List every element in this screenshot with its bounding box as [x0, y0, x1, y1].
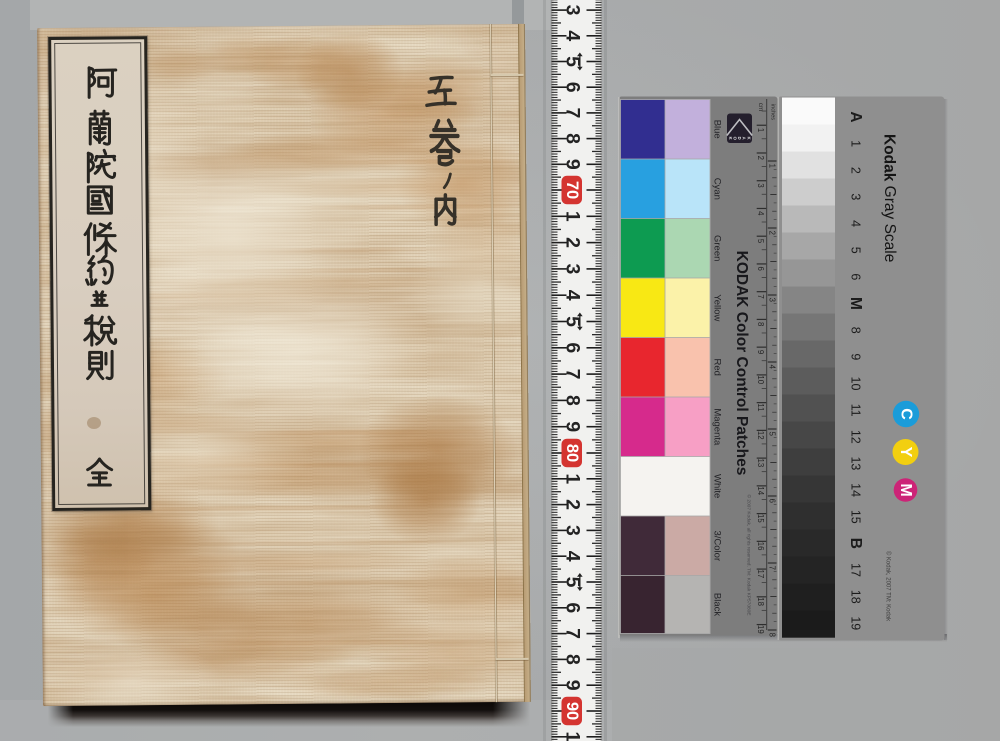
svg-text:8: 8: [561, 133, 583, 144]
svg-text:Yellow: Yellow: [712, 294, 723, 321]
svg-text:© 2007 Kodak, all rights reser: © 2007 Kodak, all rights reserved. TM: K…: [746, 494, 753, 615]
svg-text:14: 14: [849, 483, 863, 497]
svg-text:4: 4: [561, 30, 583, 41]
svg-text:13: 13: [849, 456, 863, 470]
svg-text:9: 9: [561, 159, 583, 170]
svg-text:inches: inches: [770, 104, 776, 120]
svg-text:13: 13: [756, 459, 765, 468]
svg-text:A: A: [847, 111, 864, 122]
svg-text:3: 3: [849, 193, 863, 200]
svg-text:70: 70: [563, 181, 581, 199]
svg-text:K: K: [746, 137, 751, 140]
svg-text:KODAK Color Control Patches: KODAK Color Control Patches: [733, 251, 750, 476]
svg-text:3: 3: [561, 5, 583, 16]
svg-text:8: 8: [561, 395, 583, 406]
svg-text:1: 1: [561, 473, 583, 484]
svg-text:8: 8: [561, 654, 583, 665]
svg-text:White: White: [712, 474, 723, 498]
svg-text:12: 12: [849, 430, 863, 444]
svg-text:16: 16: [756, 542, 765, 551]
svg-text:cm: cm: [757, 103, 764, 111]
svg-text:4: 4: [561, 290, 583, 301]
svg-text:14: 14: [756, 486, 765, 495]
svg-text:2: 2: [561, 499, 583, 510]
svg-text:5: 5: [849, 247, 863, 254]
svg-text:2: 2: [561, 237, 583, 248]
svg-text:9: 9: [561, 680, 583, 691]
svg-text:17: 17: [756, 570, 765, 579]
svg-text:15: 15: [756, 514, 765, 523]
svg-text:7: 7: [561, 107, 583, 118]
svg-text:18: 18: [849, 590, 863, 604]
svg-text:4: 4: [561, 551, 583, 562]
svg-text:6: 6: [756, 267, 765, 271]
svg-text:7: 7: [561, 369, 583, 380]
svg-text:Kodak Gray Scale: Kodak Gray Scale: [881, 134, 898, 262]
svg-text:11: 11: [756, 403, 765, 411]
svg-text:4: 4: [756, 211, 765, 216]
svg-text:M: M: [897, 483, 914, 496]
svg-text:18: 18: [756, 597, 765, 606]
svg-text:17: 17: [849, 563, 863, 577]
svg-text:7: 7: [767, 566, 776, 570]
svg-text:15: 15: [849, 510, 863, 524]
svg-text:7: 7: [756, 294, 765, 298]
svg-text:9: 9: [756, 350, 765, 354]
svg-text:7: 7: [561, 628, 583, 639]
svg-text:3: 3: [767, 298, 776, 302]
svg-text:1: 1: [561, 731, 583, 741]
svg-text:6: 6: [561, 82, 583, 93]
svg-text:M: M: [847, 297, 864, 310]
svg-text:10: 10: [756, 375, 765, 384]
svg-text:6: 6: [849, 273, 863, 280]
svg-text:6: 6: [561, 602, 583, 613]
svg-text:6: 6: [767, 499, 776, 503]
svg-text:6: 6: [561, 342, 583, 353]
svg-text:Blue: Blue: [712, 120, 723, 139]
svg-text:3: 3: [756, 183, 765, 187]
svg-text:1: 1: [767, 164, 776, 168]
svg-text:Red: Red: [712, 358, 723, 375]
svg-text:8: 8: [767, 633, 776, 637]
svg-text:12: 12: [756, 431, 765, 440]
svg-text:3: 3: [561, 263, 583, 274]
svg-text:Black: Black: [712, 593, 723, 616]
svg-text:4: 4: [849, 220, 863, 227]
svg-text:8: 8: [849, 327, 863, 334]
svg-text:Magenta: Magenta: [712, 408, 723, 446]
svg-text:Green: Green: [712, 235, 723, 261]
svg-text:4: 4: [767, 365, 776, 370]
svg-text:80: 80: [563, 444, 581, 462]
svg-text:9: 9: [849, 353, 863, 360]
svg-text:K: K: [728, 137, 733, 140]
svg-text:2: 2: [849, 167, 863, 174]
svg-text:1: 1: [849, 140, 863, 147]
svg-text:10: 10: [849, 377, 863, 391]
svg-text:3/Color: 3/Color: [712, 530, 723, 561]
svg-text:19: 19: [849, 616, 863, 630]
svg-text:D: D: [737, 137, 742, 140]
svg-text:© Kodak, 2007 TM: Kodak: © Kodak, 2007 TM: Kodak: [885, 551, 892, 622]
svg-text:19: 19: [756, 625, 765, 634]
svg-text:A: A: [742, 137, 747, 140]
svg-text:Cyan: Cyan: [712, 178, 723, 200]
svg-text:3: 3: [561, 525, 583, 536]
svg-text:1: 1: [561, 211, 583, 222]
svg-text:8: 8: [756, 322, 765, 326]
svg-text:5: 5: [767, 432, 776, 437]
svg-text:C: C: [898, 408, 915, 420]
svg-text:90: 90: [563, 702, 581, 720]
svg-text:11: 11: [849, 404, 863, 417]
svg-text:B: B: [847, 538, 864, 549]
svg-text:5: 5: [756, 239, 765, 244]
svg-text:2: 2: [756, 156, 765, 160]
svg-text:9: 9: [561, 421, 583, 432]
svg-text:2: 2: [767, 231, 776, 235]
svg-text:Y: Y: [897, 447, 914, 458]
svg-text:1: 1: [756, 128, 765, 132]
